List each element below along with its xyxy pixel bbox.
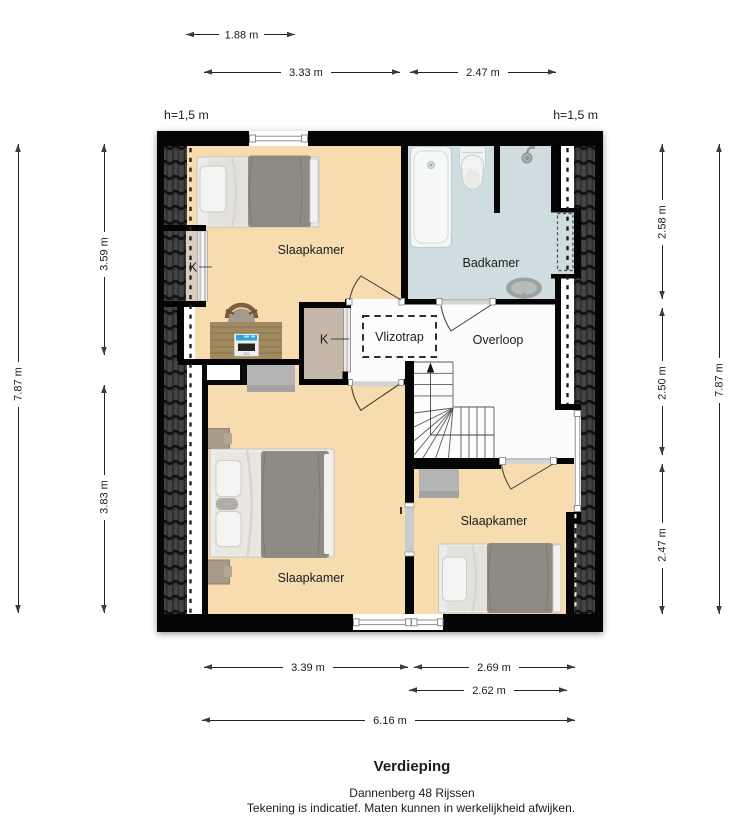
- svg-text:Vlizotrap: Vlizotrap: [375, 330, 424, 344]
- svg-text:Tekening is indicatief. Maten: Tekening is indicatief. Maten kunnen in …: [247, 801, 575, 815]
- svg-text:2.47 m: 2.47 m: [657, 528, 669, 562]
- svg-text:2.69 m: 2.69 m: [477, 662, 511, 674]
- svg-text:Slaapkamer: Slaapkamer: [278, 571, 345, 585]
- svg-text:Dannenberg 48 Rijssen: Dannenberg 48 Rijssen: [349, 786, 474, 800]
- svg-text:7.87 m: 7.87 m: [13, 367, 25, 401]
- svg-text:h=1,5 m: h=1,5 m: [164, 108, 209, 122]
- svg-text:2.62 m: 2.62 m: [472, 685, 506, 697]
- svg-text:Overloop: Overloop: [473, 333, 524, 347]
- svg-text:3.33 m: 3.33 m: [289, 67, 323, 79]
- svg-text:3.39 m: 3.39 m: [291, 662, 325, 674]
- svg-text:2.47 m: 2.47 m: [466, 67, 500, 79]
- svg-text:K: K: [189, 261, 198, 275]
- svg-text:h=1,5 m: h=1,5 m: [553, 108, 598, 122]
- svg-text:2.50 m: 2.50 m: [657, 366, 669, 400]
- svg-text:3.59 m: 3.59 m: [99, 237, 111, 271]
- svg-text:6.16 m: 6.16 m: [373, 715, 407, 727]
- svg-text:Verdieping: Verdieping: [374, 758, 451, 775]
- svg-text:3.83 m: 3.83 m: [99, 480, 111, 514]
- svg-text:Slaapkamer: Slaapkamer: [278, 243, 345, 257]
- svg-text:1.88 m: 1.88 m: [225, 30, 259, 42]
- svg-text:7.87 m: 7.87 m: [714, 363, 726, 397]
- svg-text:Slaapkamer: Slaapkamer: [461, 514, 528, 528]
- svg-text:Badkamer: Badkamer: [463, 256, 520, 270]
- svg-text:2.58 m: 2.58 m: [657, 205, 669, 239]
- svg-text:K: K: [320, 333, 329, 347]
